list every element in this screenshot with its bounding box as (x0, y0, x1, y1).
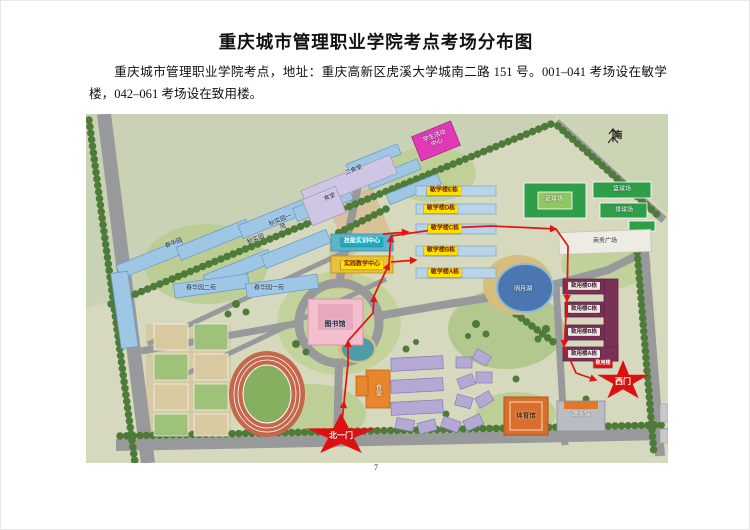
lake (483, 255, 553, 315)
document-page: 重庆城市管理职业学院考点考场分布图 重庆城市管理职业学院考点，地址：重庆高新区虎… (0, 0, 750, 530)
gymnasium-building (504, 397, 548, 435)
west-gate-label: 西门 (615, 376, 631, 387)
compass-north-arrow-icon (606, 128, 620, 144)
campus-map-graphic (86, 114, 668, 463)
page-number: 7 (1, 463, 750, 472)
page-title: 重庆城市管理职业学院考点考场分布图 (1, 29, 750, 54)
exam-address-paragraph: 重庆城市管理职业学院考点，地址：重庆高新区虎溪大学城南二路 151 号。001–… (89, 61, 667, 106)
campus-map: 二食堂食堂学生活动中心春华园秋实园秋实园一苑春华园二苑春华园一苑技能实训中心实践… (86, 114, 668, 463)
natatorium-building (557, 401, 605, 431)
stadium (229, 351, 305, 437)
practice-teaching-building (331, 256, 393, 273)
skills-training-building (331, 234, 393, 251)
business-plaza-building (559, 229, 652, 254)
library-building (308, 299, 363, 345)
compass: 南 (606, 128, 630, 141)
north-gate-1-label: 北一门 (329, 430, 353, 441)
